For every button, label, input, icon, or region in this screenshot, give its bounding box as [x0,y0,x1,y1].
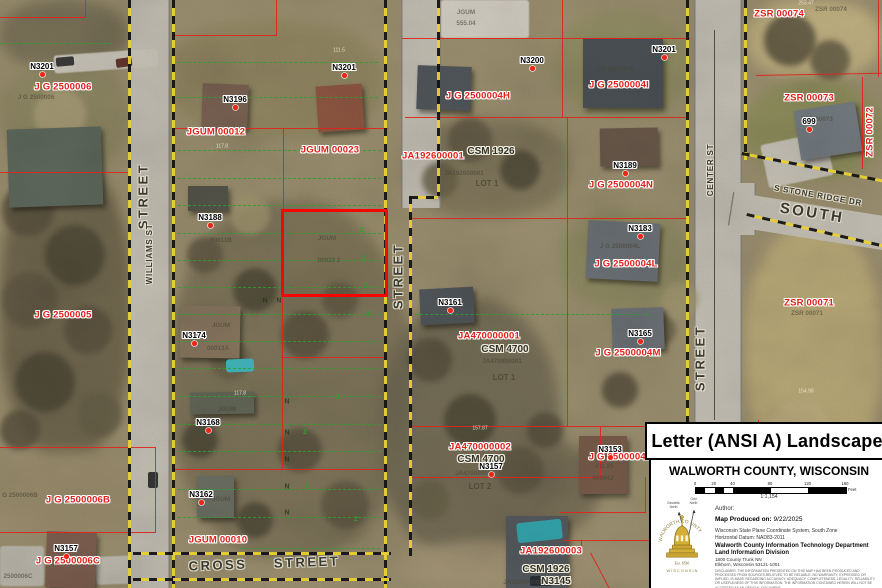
parcel-boundary-line [85,0,86,18]
parcel-boundary-line [412,218,688,219]
scalebar-tick: 0 [694,481,696,486]
parcel-boundary-line [281,357,388,358]
map-produced-line: Map Produced on: 9/22/2025 [715,516,802,523]
county-title: WALWORTH COUNTY, WISCONSIN [651,464,882,478]
scalebar-bar [695,487,847,494]
parcel-boundary-line [276,0,277,36]
parcel-id-label: ZSR 00073 [784,93,834,103]
vehicle [148,472,158,488]
street-label: STREET [392,243,405,309]
tree-canopy [602,372,638,408]
parcel-boundary-line [0,172,128,173]
address-point-dot [64,554,69,559]
parcel-id-label: JGUM 00010 [189,535,248,545]
map-produced-date: 9/22/2025 [774,516,803,523]
faded-parcel-label: JA192600001 [444,171,484,177]
scalebar-segment [733,488,771,493]
tree-canopy [233,268,277,312]
building-roof [7,126,104,207]
address-point-label: N3153 [598,446,622,454]
address-point-dot [40,72,45,77]
map-document: J G 2500006JGUM 00012JGUM 00023JA1926000… [0,0,882,588]
lot-tick-line [178,178,381,179]
address-point-label: N3165 [628,330,652,338]
parcel-boundary-line [0,17,86,18]
building-roof [201,83,249,129]
lot-tick-line [178,368,381,369]
scalebar-segment [771,488,809,493]
parcel-boundary-line [402,38,690,39]
street-label: CENTER ST [707,144,715,197]
building-roof [315,83,364,132]
lot-tick-mark: Z [303,430,307,437]
address-point-label: N3157 [54,545,78,553]
parcel-boundary-line [567,117,568,427]
boundary-tick-mark: N [262,298,267,305]
address-point-label: N3196 [223,96,247,104]
dimension-label: 154.98 [798,390,813,395]
address-point-label: N3189 [613,162,637,170]
parcel-id-label: J G 2500004I [589,80,649,90]
faded-parcel-label: G 2500006B [2,493,38,499]
tree-canopy [281,311,329,359]
lot-tick-line [178,396,381,397]
address-point-dot [489,472,494,477]
scalebar-segment [696,488,705,493]
faded-parcel-label: ZSR 00074 [815,7,847,13]
parcel-boundary-line [862,77,863,169]
walworth-county-logo: WALWORTH CO UNTY Est. 1836 W I S C O N S… [653,506,711,588]
scalebar-segment [715,488,724,493]
faded-parcel-label: J G 25 [595,464,614,470]
tree-canopy [0,410,40,450]
boundary-tick-mark: N [284,399,289,406]
department-line1: Walworth County Information Technology D… [715,543,869,549]
municipal-boundary-dashes [133,552,391,555]
page-format-titlebar: Letter (ANSI A) Landscape [645,422,882,460]
street-label: WILLIAMS ST [146,224,154,285]
faded-parcel-label: J G 2500006 [18,95,54,101]
parcel-id-label: J G 2500006B [46,495,110,505]
tree-canopy [237,502,273,538]
lot-tick-mark: Z [336,395,340,402]
address-point-dot [448,308,453,313]
tree-canopy [444,394,496,446]
scalebar-unit: Feet [848,487,856,492]
page-format-title: Letter (ANSI A) Landscape [651,431,882,452]
faded-parcel-label: ZSR 00071 [791,311,823,317]
municipal-boundary-dashes [744,0,747,160]
parcel-boundary-line [714,30,715,420]
address-point-dot [208,223,213,228]
parcel-boundary-line [172,35,277,36]
faded-parcel-label: 555.04 [456,21,475,27]
lot-tick-mark: Z [364,284,368,291]
road-pavement [128,0,170,588]
faded-parcel-label: 00013A [207,346,229,352]
vehicle [56,56,75,67]
scalebar-segment [705,488,714,493]
lot-tick-mark: Z [362,256,366,263]
dimension-label: 111.5 [333,49,345,54]
address-point-label: N3168 [196,419,220,427]
address-point-dot [807,127,812,132]
address-point-dot [530,66,535,71]
address-point-label: N3200 [520,57,544,65]
map-titleblock: WALWORTH COUNTY, WISCONSIN 0204080120160… [649,458,882,588]
building-roof [188,186,228,211]
parcel-boundary-line [0,447,156,448]
address-point-dot [342,73,347,78]
tree-canopy [527,412,563,448]
faded-parcel-label: JGUM [318,236,336,242]
municipal-boundary-dashes [172,0,175,588]
address-point-dot [199,500,204,505]
scalebar-segment [808,488,846,493]
lot-tick-line [178,314,381,315]
street-label: CROSS [188,557,247,572]
parcel-id-label: ZSR 00071 [784,298,834,308]
author-label: Author: [715,506,734,512]
parcel-boundary-line [172,469,388,470]
lot-tick-line [178,341,381,342]
address-point-label: N3201 [332,64,356,72]
parcel-boundary-line [410,477,601,478]
parcel-boundary-line [560,512,646,513]
address-point-dot [192,341,197,346]
lot-number-label: LOT 1 [476,180,499,188]
swimming-pool [226,359,254,373]
faded-parcel-label: JGUM [457,10,475,16]
faded-parcel-label: 00011B [210,238,232,244]
tree-canopy [764,14,816,66]
municipal-boundary-dashes [133,578,391,581]
faded-parcel-label: 00004J [592,476,613,482]
datum-note: Horizontal Datum: NAD83-2011 [715,535,785,541]
lot-tick-mark: Z [360,228,364,235]
boundary-tick-mark: N [284,484,289,491]
address-point-dot [662,55,667,60]
address-point-dot [206,428,211,433]
lot-tick-line [178,205,381,206]
dimension-label: 117.8 [234,392,246,397]
building-roof [793,101,862,160]
logo-state-text: W I S C O N S I N [667,569,698,573]
coordinate-system-note: Wisconsin State Plane Coordinate System,… [715,528,838,534]
lot-tick-line [178,97,378,98]
municipal-boundary-dashes [410,196,438,199]
dimension-label: 157.87 [472,427,487,432]
csm-label: CSM 4700 [481,345,528,355]
scalebar-tick: 80 [768,481,773,486]
municipal-boundary-dashes [437,0,440,196]
lot-number-label: LOT 2 [469,483,492,491]
municipal-boundary-dashes [409,196,412,556]
address-point-dot [608,455,613,460]
parcel-boundary-line [283,128,284,210]
faded-parcel-label: JA192600003 [503,580,543,586]
boundary-tick-mark: N [284,430,289,437]
address-point-label: N3188 [198,214,222,222]
address-point-dot [638,339,643,344]
map-produced-label: Map Produced on: [715,516,772,523]
parcel-boundary-line [282,298,283,469]
disclaimer-text: DISCLAIMER: THE INFORMATION PRESENTED ON… [715,569,879,588]
department-address2: Elkhorn, Wisconsin 53121-1001 [715,562,780,567]
address-point-dot [623,171,628,176]
street-label: STREET [137,163,150,229]
address-point-label: N3157 [479,463,503,471]
faded-parcel-label: J G 2500004L [600,244,640,250]
parcel-id-label: J G 2500004N [589,180,653,190]
address-point-label: N3201 [30,63,54,71]
tree-canopy [408,338,452,382]
scalebar-tick: 160 [842,481,849,486]
municipal-boundary-dashes [128,0,131,588]
street-label: STREET [274,554,341,569]
parcel-id-label: J G 2500004M [595,348,660,358]
address-point-dot [233,105,238,110]
tree-canopy [410,480,450,520]
parcel-id-label: JGUM 00012 [187,127,246,137]
lot-tick-line [178,517,381,518]
tree-canopy [78,393,122,437]
parcel-id-label: JA192600003 [520,546,582,556]
tree-canopy [45,225,105,285]
boundary-tick-mark: N [276,298,281,305]
scale-ratio: 1:1,154 [651,494,882,500]
parcel-boundary-line [563,540,663,541]
parcel-boundary-line [878,0,879,77]
logo-est-text: Est. 1836 [675,561,690,565]
parcel-boundary-line [645,477,646,513]
driveway [441,0,529,38]
tree-canopy [15,352,75,412]
csm-label: CSM 1926 [522,565,569,575]
address-point-label: N3174 [182,332,206,340]
boundary-tick-mark: N [284,510,289,517]
faded-parcel-label: 2500006C [3,574,32,580]
parcel-id-label: JGUM 00023 [301,145,360,155]
lot-tick-mark: Z [305,484,309,491]
grid-north-label: Grid North [687,498,700,505]
csm-label: CSM 1926 [467,147,514,157]
department-line2: Land Information Division [715,550,789,556]
boundary-tick-mark: N [284,457,289,464]
lot-tick-line [240,548,380,549]
scalebar-segment [724,488,733,493]
csm-label: N3145 [541,577,570,587]
building-roof [416,65,472,111]
lot-tick-mark: Z [366,312,370,319]
tree-canopy [422,162,458,198]
parcel-id-label: ZSR 00074 [754,9,804,19]
street-label: STREET [694,325,707,391]
address-point-dot [638,234,643,239]
parcel-boundary-line [410,426,666,427]
lot-tick-line [178,451,381,452]
faded-parcel-label: J G 2500004I [596,67,634,73]
tree-canopy [230,195,270,235]
scalebar-tick: 40 [730,481,735,486]
lot-tick-line [0,43,112,44]
parcel-id-label: J G 2500005 [34,310,91,320]
scalebar-ticks: 0204080120160 [695,481,845,486]
parcel-id-label: J G 2500004H [446,91,510,101]
parcel-boundary-line [562,0,563,118]
scalebar: 0204080120160 Feet [695,481,865,495]
selected-parcel-outline [281,209,388,297]
faded-parcel-label: JGUM [218,407,236,413]
tree-canopy [662,282,698,318]
parcel-boundary-line [405,117,688,118]
lot-tick-mark: Z [354,517,358,524]
parcel-id-label: ZSR 00072 [865,107,875,157]
faded-parcel-label: 00023 2 [318,258,341,264]
parcel-id-label: J G 2500006 [34,82,91,92]
dimension-label: 253.47 [798,2,813,7]
faded-parcel-label: JA470000001 [482,359,522,365]
faded-parcel-label: JGUM [212,497,230,503]
address-point-label: N3201 [652,46,676,54]
lot-tick-line [415,314,650,315]
address-point-label: N3162 [189,491,213,499]
dimension-label: 117.8 [216,145,228,150]
parcel-boundary-line [0,532,156,533]
address-point-label: N3183 [628,225,652,233]
address-point-label: 699 [802,118,815,126]
scalebar-tick: 120 [804,481,811,486]
parcel-boundary-line [155,447,156,533]
municipal-boundary-dashes [686,0,689,458]
parcel-id-label: JA470000001 [458,331,520,341]
parcel-id-label: JA470000002 [449,442,511,452]
address-point-label: N3161 [438,299,462,307]
scalebar-tick: 20 [711,481,716,486]
faded-parcel-label: JGUM [212,323,230,329]
parcel-id-label: JA192600001 [402,151,464,161]
parcel-id-label: J G 2500004L [594,259,657,269]
lot-number-label: LOT 1 [493,374,516,382]
tree-canopy [182,422,218,458]
